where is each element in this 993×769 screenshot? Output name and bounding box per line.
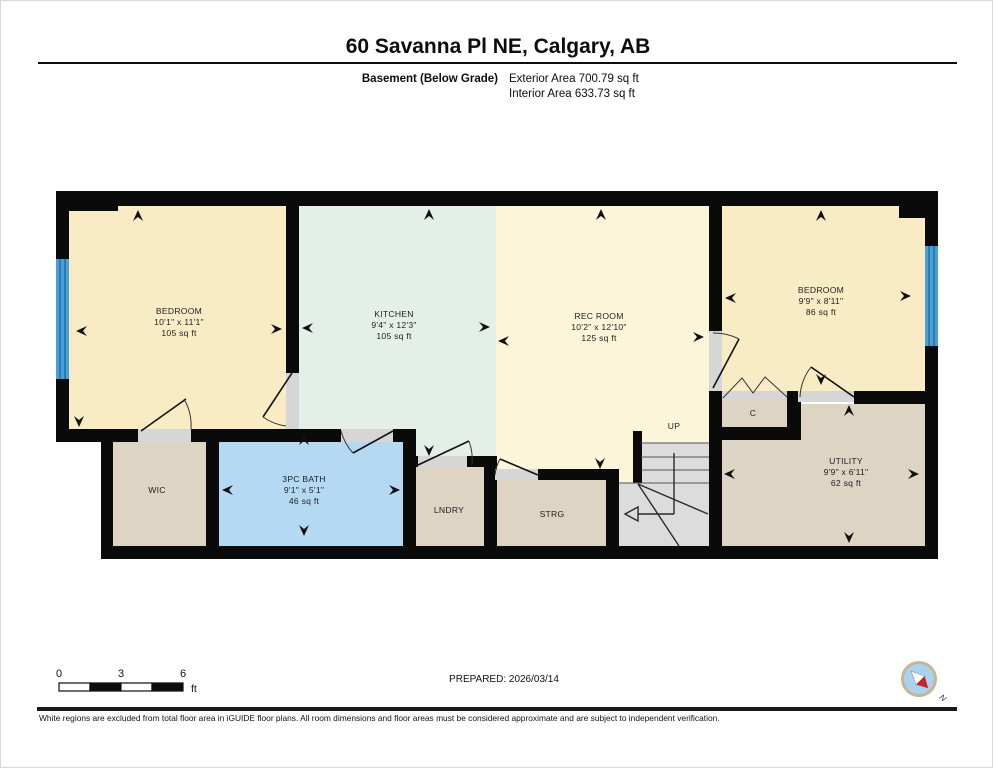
room-name: KITCHEN	[374, 309, 413, 319]
room-label-closet: C	[750, 408, 756, 418]
stairs-upper-floor	[641, 443, 709, 483]
exterior-area: Exterior Area 700.79 sq ft	[509, 73, 640, 85]
compass-icon: N	[903, 663, 949, 704]
rec-room-floor-ext2	[619, 443, 634, 483]
compass-north-label: N	[938, 693, 948, 704]
room-area: 86 sq ft	[806, 307, 837, 317]
header: 60 Savanna Pl NE, Calgary, AB Basement (…	[38, 35, 957, 100]
floor-plan: BEDROOM 10'1" x 11'1" 105 sq ft KITCHEN …	[56, 191, 938, 559]
prepared-date: PREPARED: 2026/03/14	[449, 674, 559, 685]
floor-plan-page: 60 Savanna Pl NE, Calgary, AB Basement (…	[1, 1, 993, 769]
room-name: BEDROOM	[156, 306, 202, 316]
room-label-laundry: LNDRY	[434, 505, 464, 515]
window-left	[56, 259, 69, 379]
room-area: 46 sq ft	[289, 496, 320, 506]
interior-area: Interior Area 633.73 sq ft	[509, 88, 636, 100]
window-right	[925, 246, 938, 346]
scale-bar: 0 3 6 ft	[56, 668, 197, 695]
room-area: 105 sq ft	[376, 331, 412, 341]
room-area: 125 sq ft	[581, 333, 617, 343]
room-area: 62 sq ft	[831, 478, 862, 488]
footer-divider	[37, 707, 957, 711]
page-title: 60 Savanna Pl NE, Calgary, AB	[346, 35, 651, 58]
room-dims: 9'9" x 8'11"	[799, 296, 844, 306]
room-name: REC ROOM	[574, 311, 623, 321]
room-name: BEDROOM	[798, 285, 844, 295]
header-divider	[38, 62, 957, 64]
room-name: UTILITY	[829, 456, 863, 466]
stairs-up-label: UP	[668, 421, 680, 431]
scale-tick-6: 6	[180, 668, 186, 680]
scale-unit: ft	[191, 683, 197, 695]
disclaimer-text: White regions are excluded from total fl…	[39, 713, 720, 723]
room-label-storage: STRG	[540, 509, 565, 519]
room-label-wic: WIC	[148, 485, 165, 495]
room-dims: 10'1" x 11'1"	[154, 317, 204, 327]
floor-label: Basement (Below Grade)	[362, 73, 498, 85]
room-dims: 9'9" x 6'11"	[824, 467, 869, 477]
room-name: 3PC BATH	[282, 474, 325, 484]
room-area: 105 sq ft	[161, 328, 197, 338]
room-label-bedroom-left: BEDROOM 10'1" x 11'1" 105 sq ft	[154, 306, 204, 338]
room-dims: 9'4" x 12'3"	[371, 320, 416, 330]
scale-tick-0: 0	[56, 668, 62, 680]
scale-tick-3: 3	[118, 668, 124, 680]
room-dims: 9'1" x 5'1"	[284, 485, 324, 495]
room-label-kitchen: KITCHEN 9'4" x 12'3" 105 sq ft	[371, 309, 416, 341]
room-dims: 10'2" x 12'10"	[571, 322, 626, 332]
